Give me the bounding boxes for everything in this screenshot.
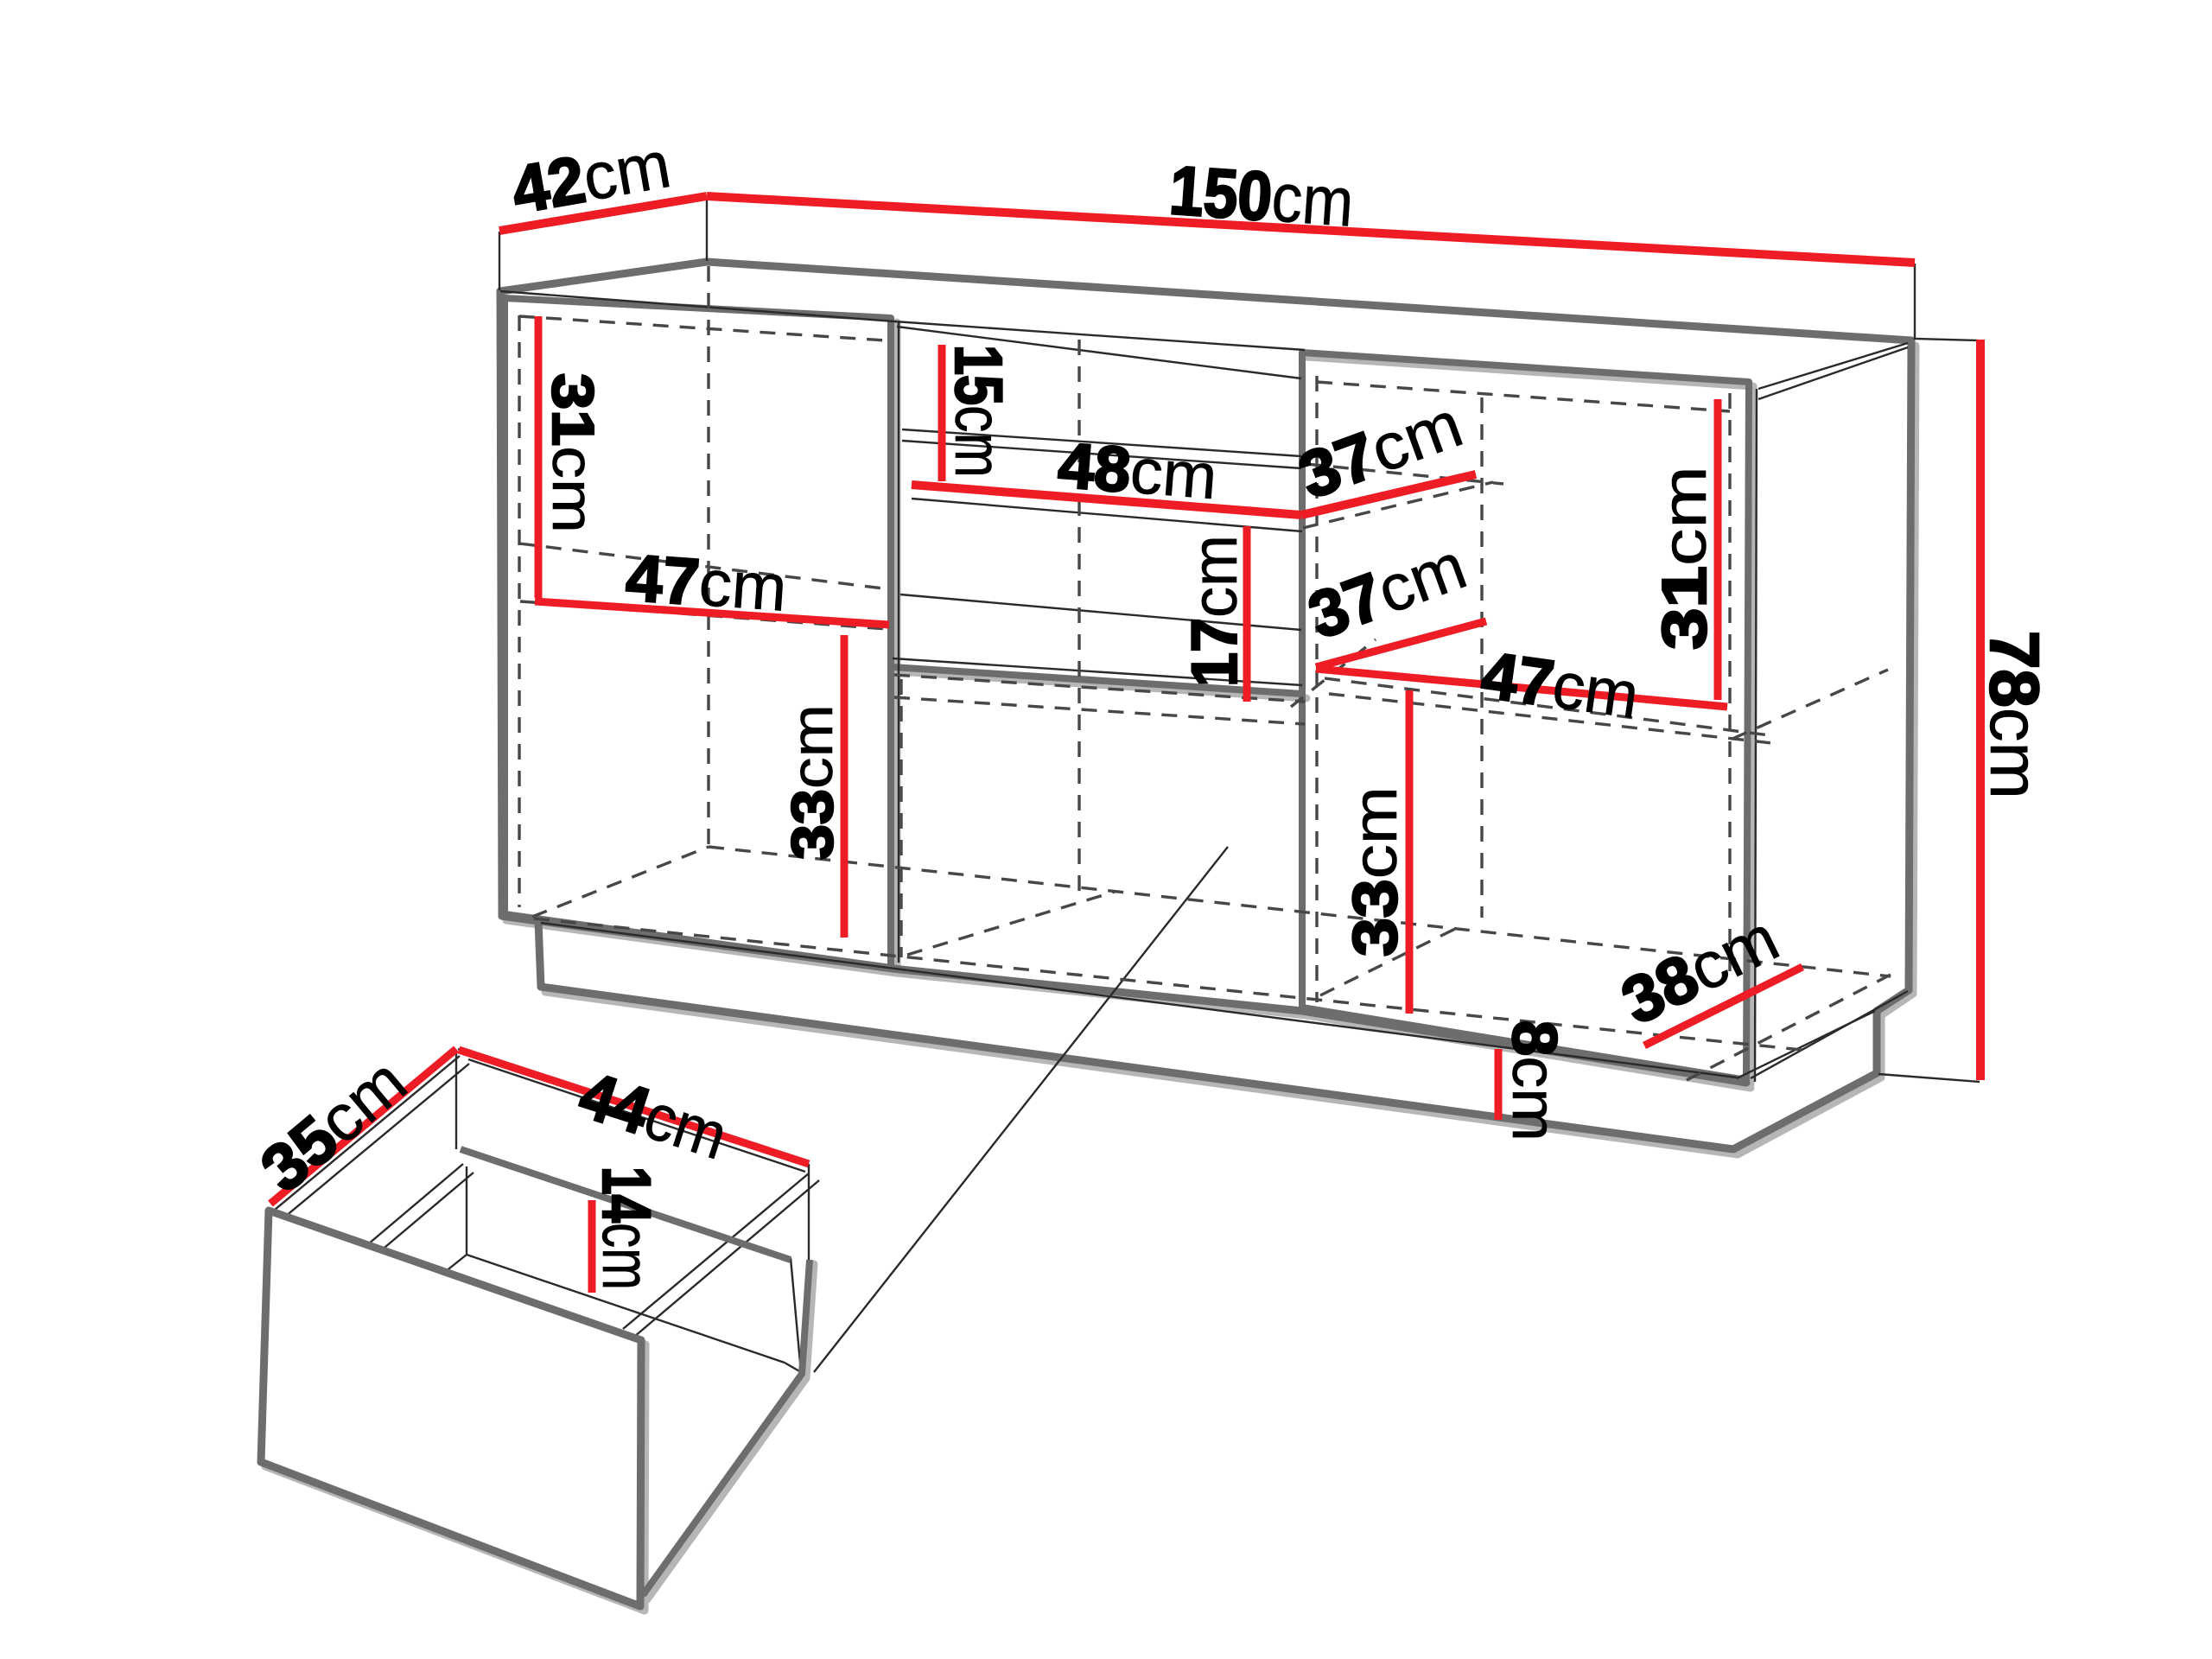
svg-text:8cm: 8cm bbox=[1499, 1020, 1568, 1141]
svg-text:31cm: 31cm bbox=[1650, 466, 1719, 650]
svg-text:78cm: 78cm bbox=[1976, 631, 2053, 799]
svg-text:15cm: 15cm bbox=[941, 345, 1015, 478]
svg-text:14cm: 14cm bbox=[588, 1166, 665, 1290]
svg-text:47cm: 47cm bbox=[624, 541, 789, 626]
svg-text:17cm: 17cm bbox=[1179, 535, 1250, 687]
svg-text:33cm: 33cm bbox=[1341, 786, 1410, 957]
svg-text:48cm: 48cm bbox=[1056, 429, 1220, 512]
svg-text:150cm: 150cm bbox=[1167, 151, 1357, 241]
svg-text:31cm: 31cm bbox=[540, 373, 606, 533]
svg-text:33cm: 33cm bbox=[779, 704, 845, 860]
